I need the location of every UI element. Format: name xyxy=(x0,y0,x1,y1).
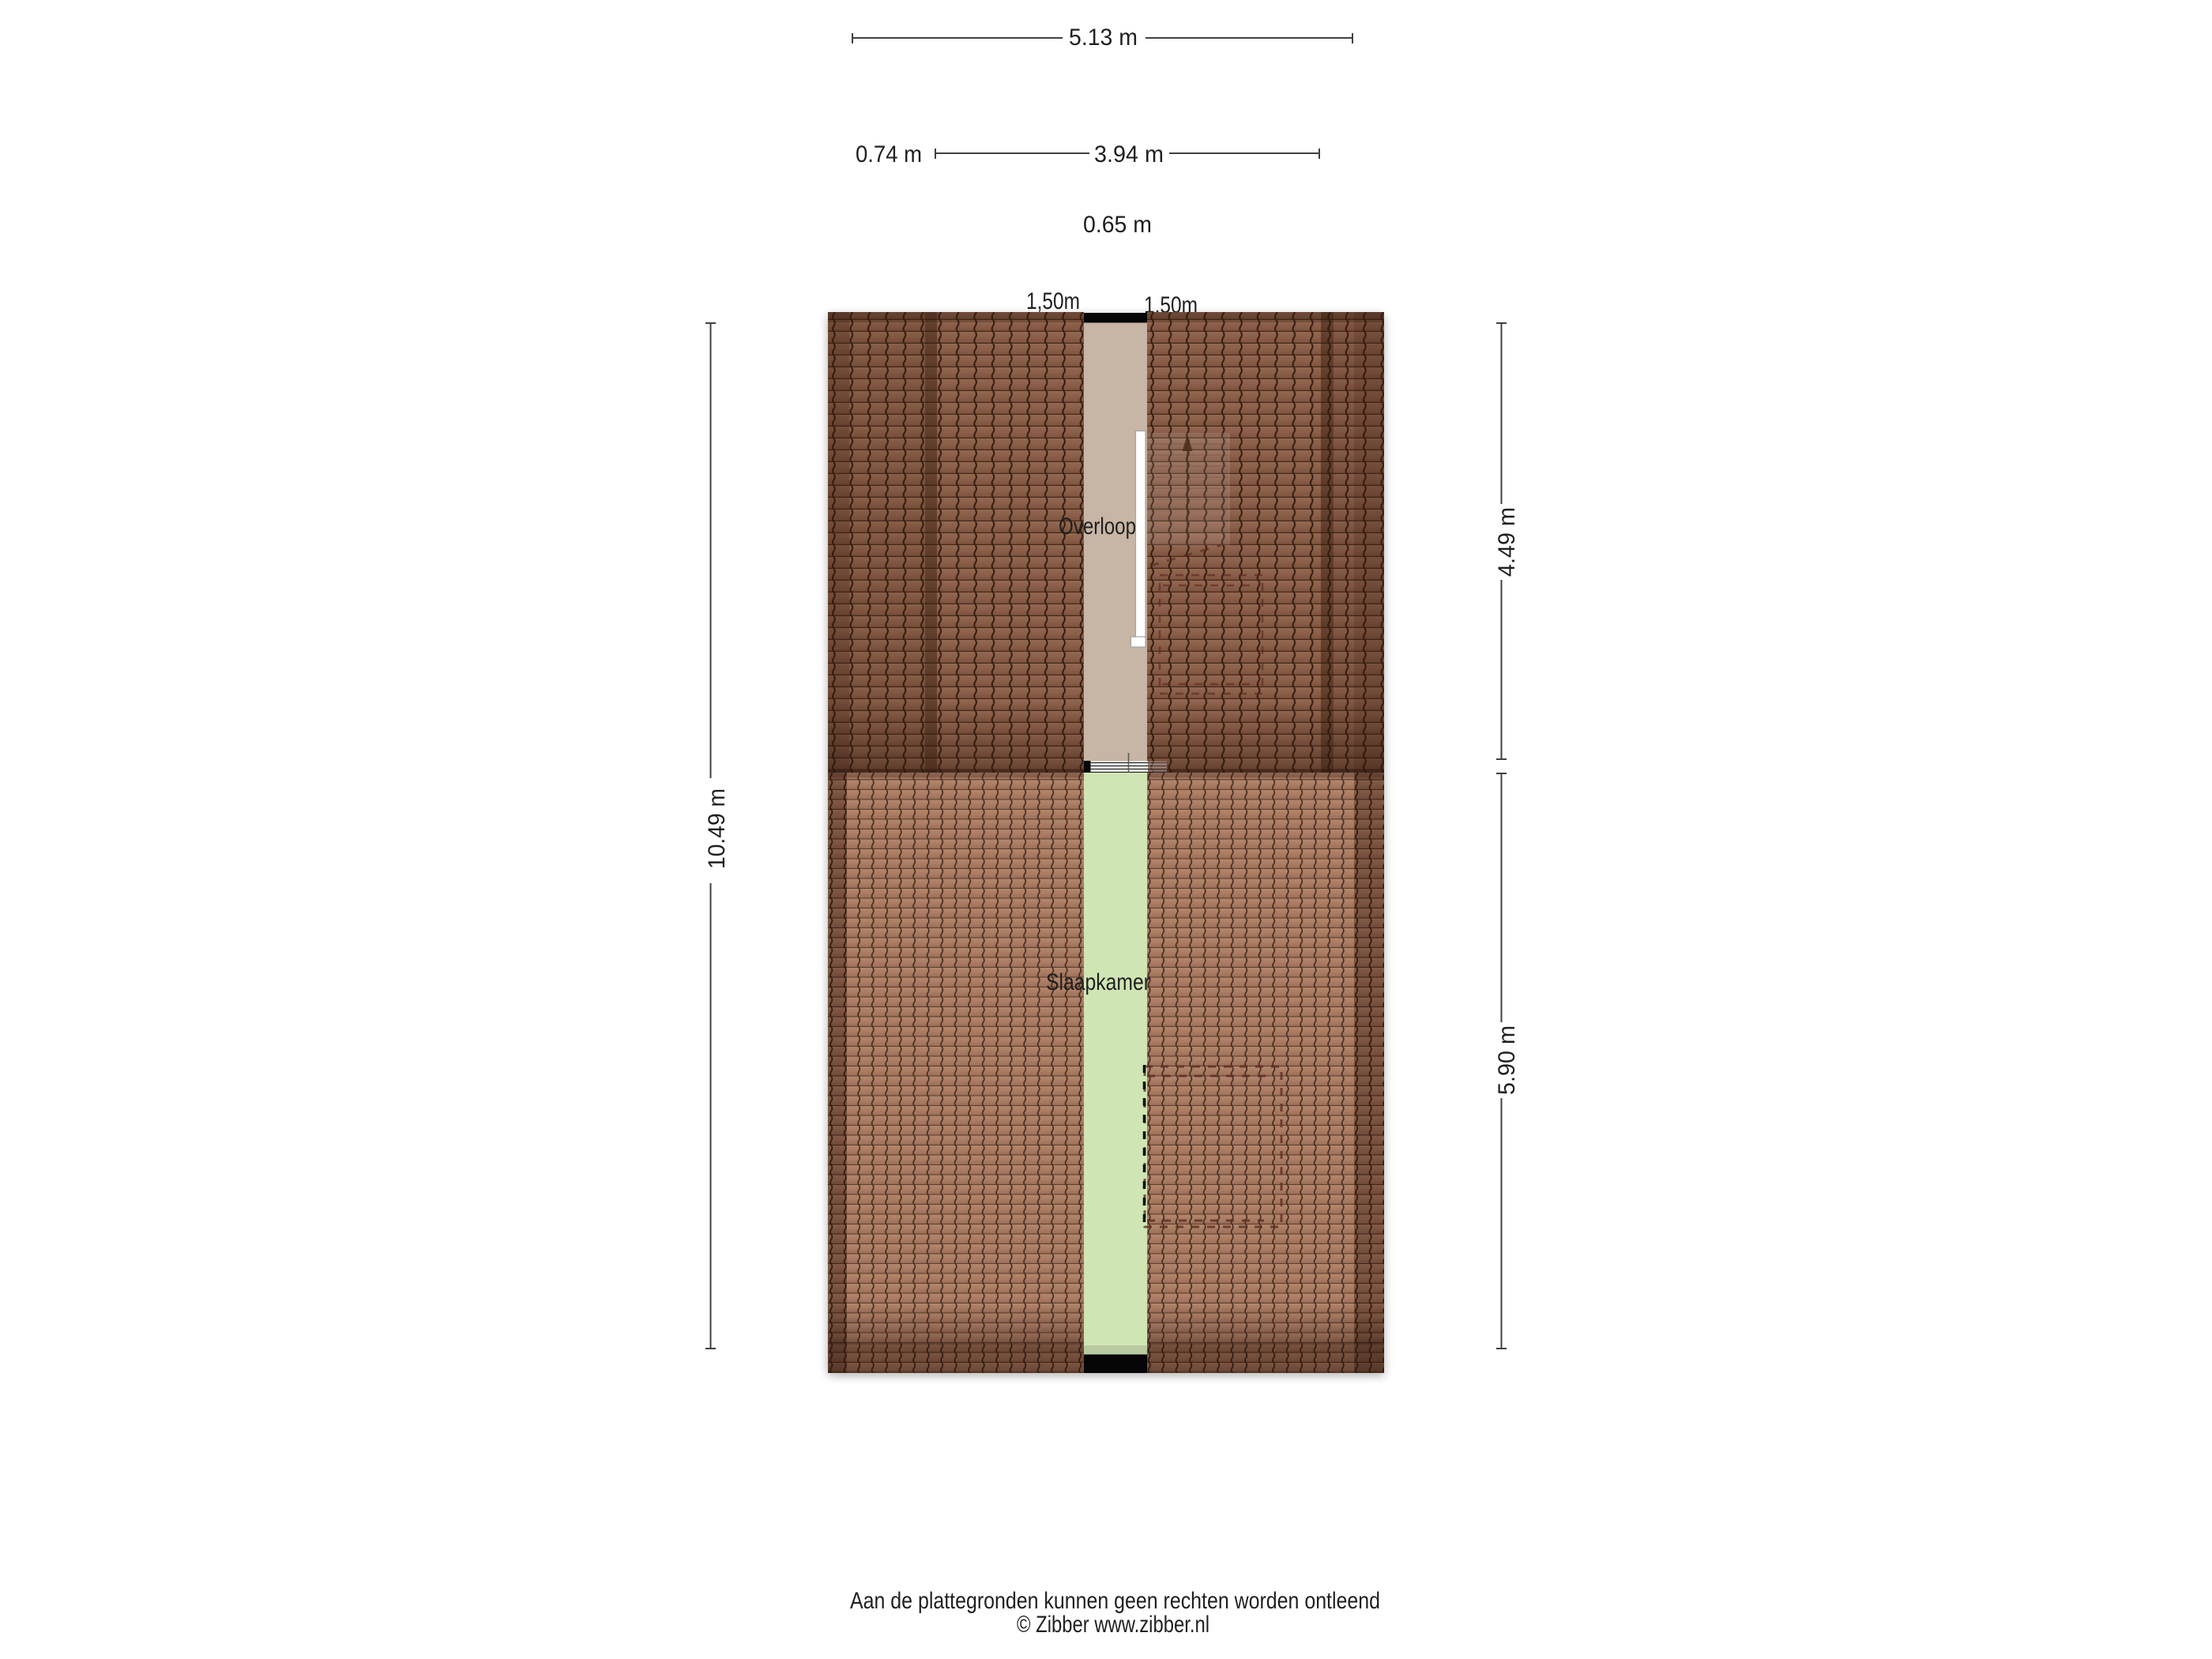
svg-text:5.90 m: 5.90 m xyxy=(1494,1025,1520,1095)
svg-text:Overloop: Overloop xyxy=(1059,513,1136,540)
svg-text:1,50m: 1,50m xyxy=(1026,288,1080,314)
svg-text:© Zibber www.zibber.nl: © Zibber www.zibber.nl xyxy=(1017,1612,1209,1638)
svg-text:0.74 m: 0.74 m xyxy=(856,141,922,167)
svg-text:5.13 m: 5.13 m xyxy=(1069,24,1138,51)
svg-text:Aan de plattegronden kunnen ge: Aan de plattegronden kunnen geen rechten… xyxy=(850,1588,1380,1614)
svg-text:10.49 m: 10.49 m xyxy=(704,788,730,869)
svg-text:0.65 m: 0.65 m xyxy=(1083,212,1152,238)
svg-text:3.94 m: 3.94 m xyxy=(1094,141,1164,167)
svg-text:Slaapkamer: Slaapkamer xyxy=(1046,969,1150,995)
svg-text:4.49 m: 4.49 m xyxy=(1494,507,1520,577)
